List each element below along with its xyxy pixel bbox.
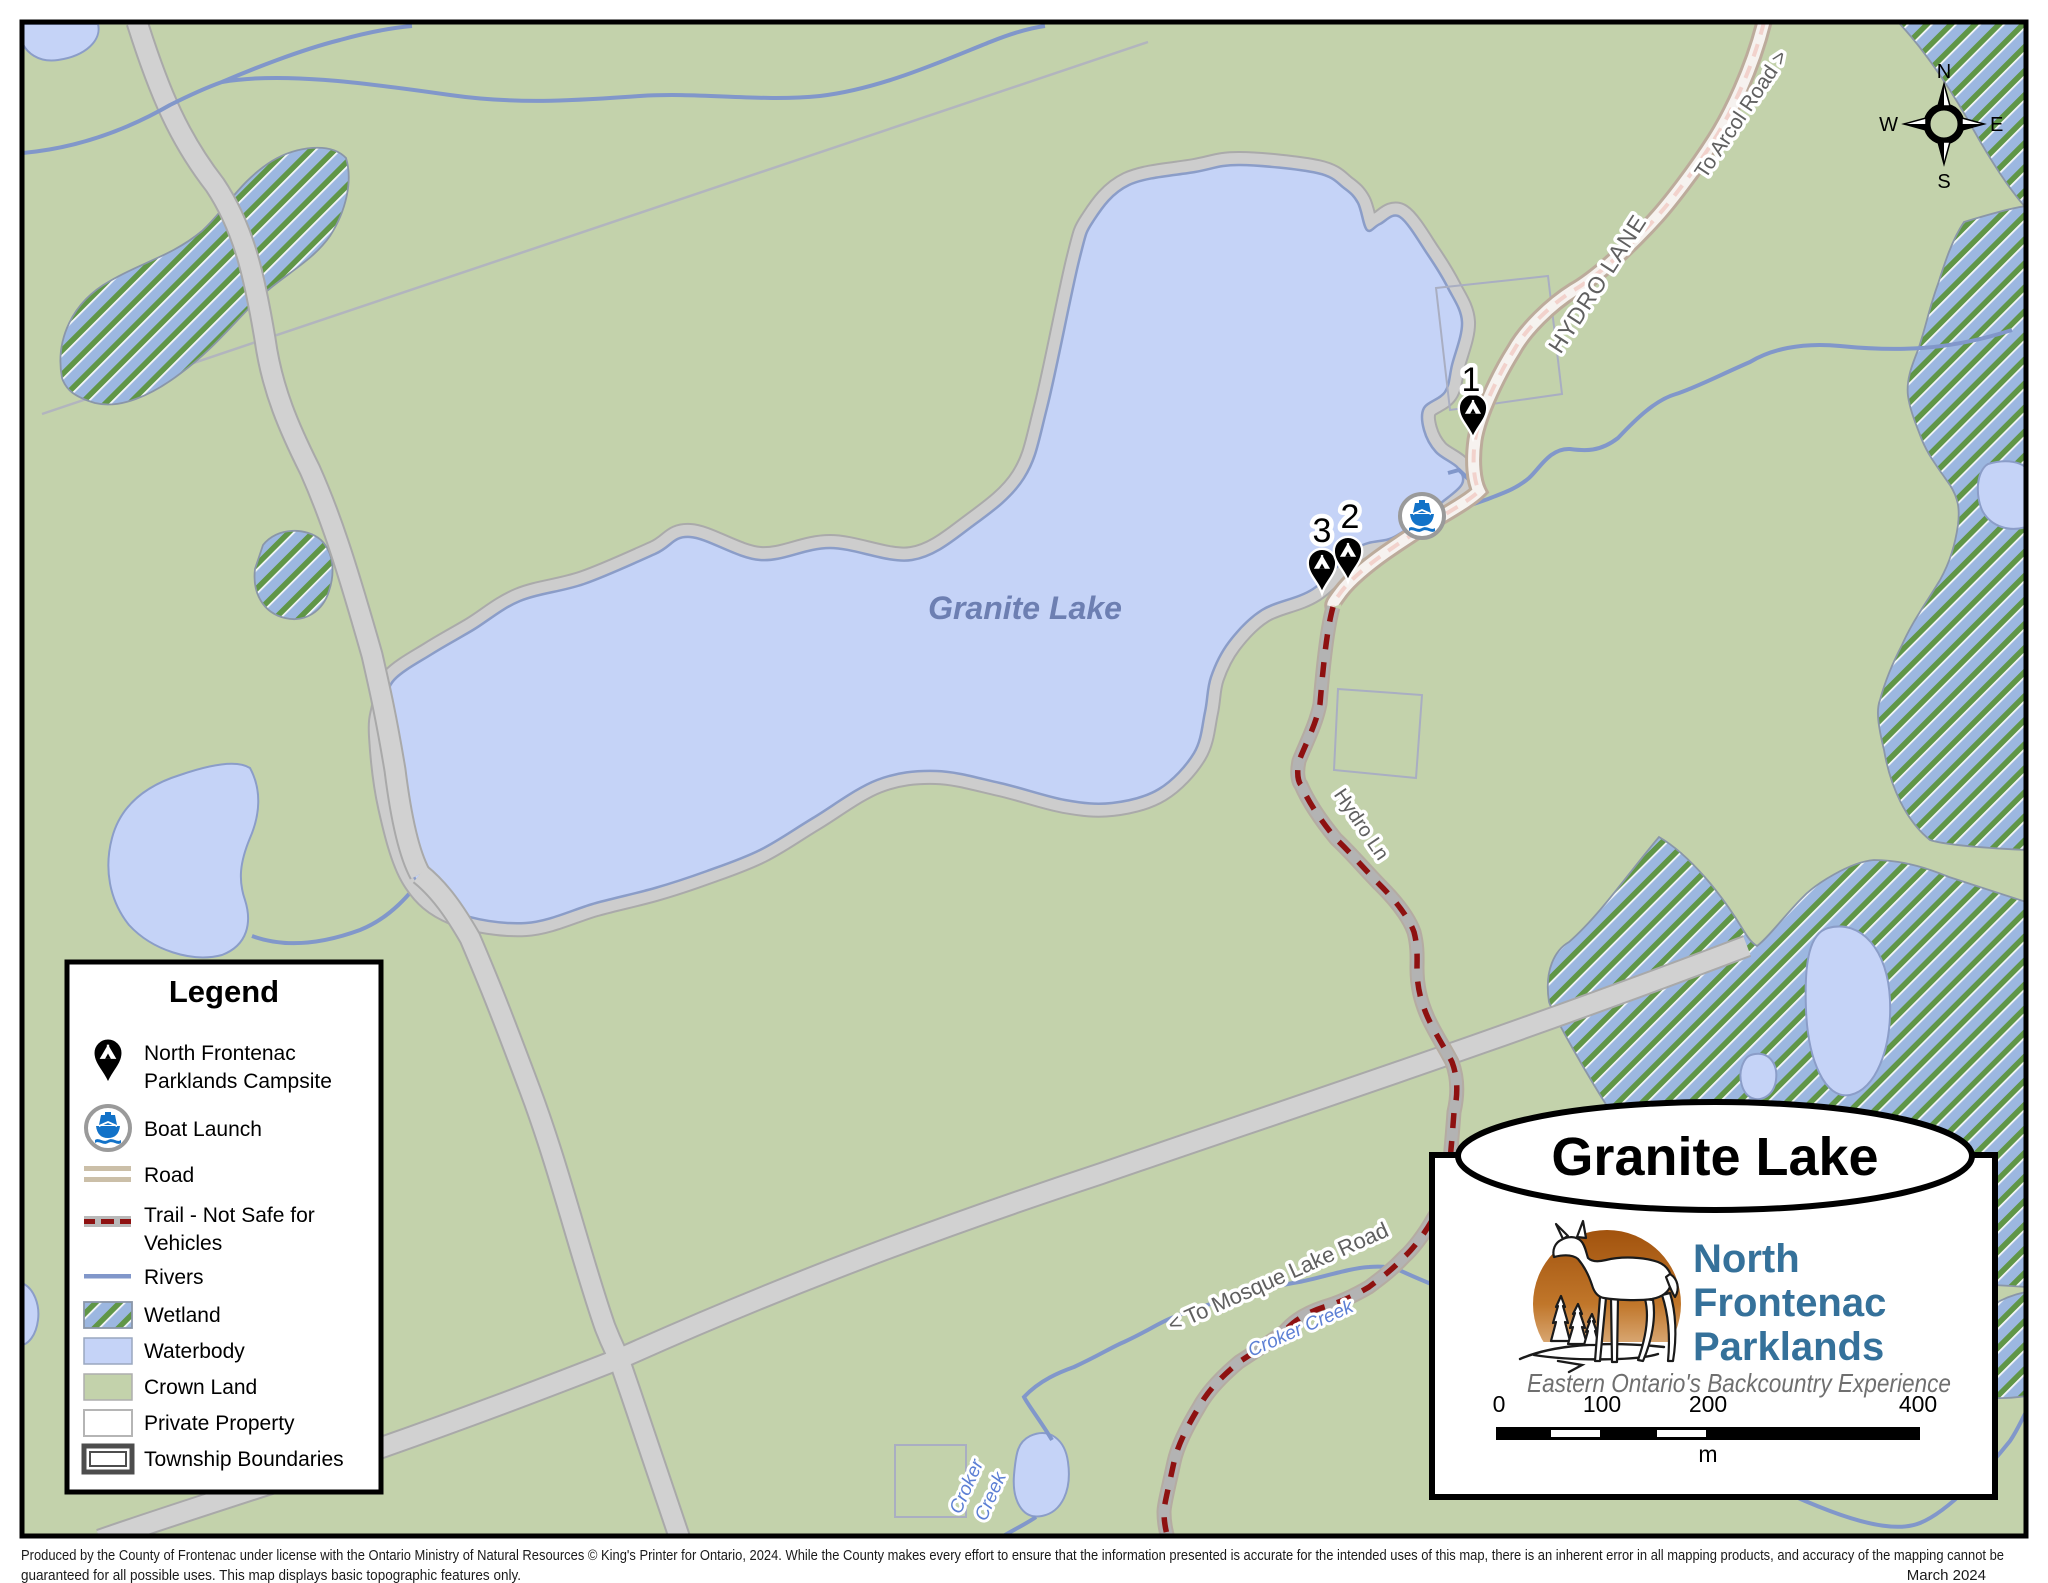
svg-text:North Frontenac: North Frontenac bbox=[144, 1042, 296, 1065]
svg-text:Granite Lake: Granite Lake bbox=[1551, 1127, 1878, 1187]
svg-text:Road: Road bbox=[144, 1164, 194, 1187]
svg-text:200: 200 bbox=[1689, 1391, 1727, 1417]
svg-text:Produced by the County of Fron: Produced by the County of Frontenac unde… bbox=[21, 1547, 2004, 1564]
svg-text:Vehicles: Vehicles bbox=[144, 1232, 222, 1255]
svg-text:Parklands Campsite: Parklands Campsite bbox=[144, 1070, 332, 1093]
svg-text:Township Boundaries: Township Boundaries bbox=[144, 1448, 344, 1471]
svg-text:March 2024: March 2024 bbox=[1907, 1567, 1986, 1583]
svg-text:Waterbody: Waterbody bbox=[144, 1340, 245, 1363]
svg-text:Private Property: Private Property bbox=[144, 1412, 295, 1435]
svg-text:Parklands: Parklands bbox=[1693, 1325, 1884, 1369]
svg-text:guaranteed for all possible us: guaranteed for all possible uses. This m… bbox=[21, 1567, 521, 1583]
svg-text:E: E bbox=[1990, 114, 2003, 136]
svg-text:2: 2 bbox=[1341, 498, 1360, 536]
svg-text:m: m bbox=[1698, 1441, 1717, 1467]
svg-text:N: N bbox=[1937, 61, 1951, 83]
svg-text:Boat Launch: Boat Launch bbox=[144, 1118, 262, 1141]
svg-text:Granite Lake: Granite Lake bbox=[928, 590, 1122, 626]
svg-text:W: W bbox=[1879, 114, 1898, 136]
svg-text:400: 400 bbox=[1899, 1391, 1937, 1417]
svg-text:Trail - Not Safe for: Trail - Not Safe for bbox=[144, 1204, 315, 1227]
svg-text:North: North bbox=[1693, 1237, 1800, 1281]
svg-text:Rivers: Rivers bbox=[144, 1266, 204, 1289]
svg-text:3: 3 bbox=[1313, 512, 1332, 550]
svg-text:0: 0 bbox=[1493, 1391, 1506, 1417]
svg-text:1: 1 bbox=[1462, 361, 1481, 399]
svg-text:100: 100 bbox=[1583, 1391, 1621, 1417]
svg-text:Crown Land: Crown Land bbox=[144, 1376, 257, 1399]
svg-text:Wetland: Wetland bbox=[144, 1304, 221, 1327]
svg-text:S: S bbox=[1937, 171, 1950, 193]
svg-text:Legend: Legend bbox=[169, 974, 279, 1009]
svg-text:Frontenac: Frontenac bbox=[1693, 1281, 1886, 1325]
